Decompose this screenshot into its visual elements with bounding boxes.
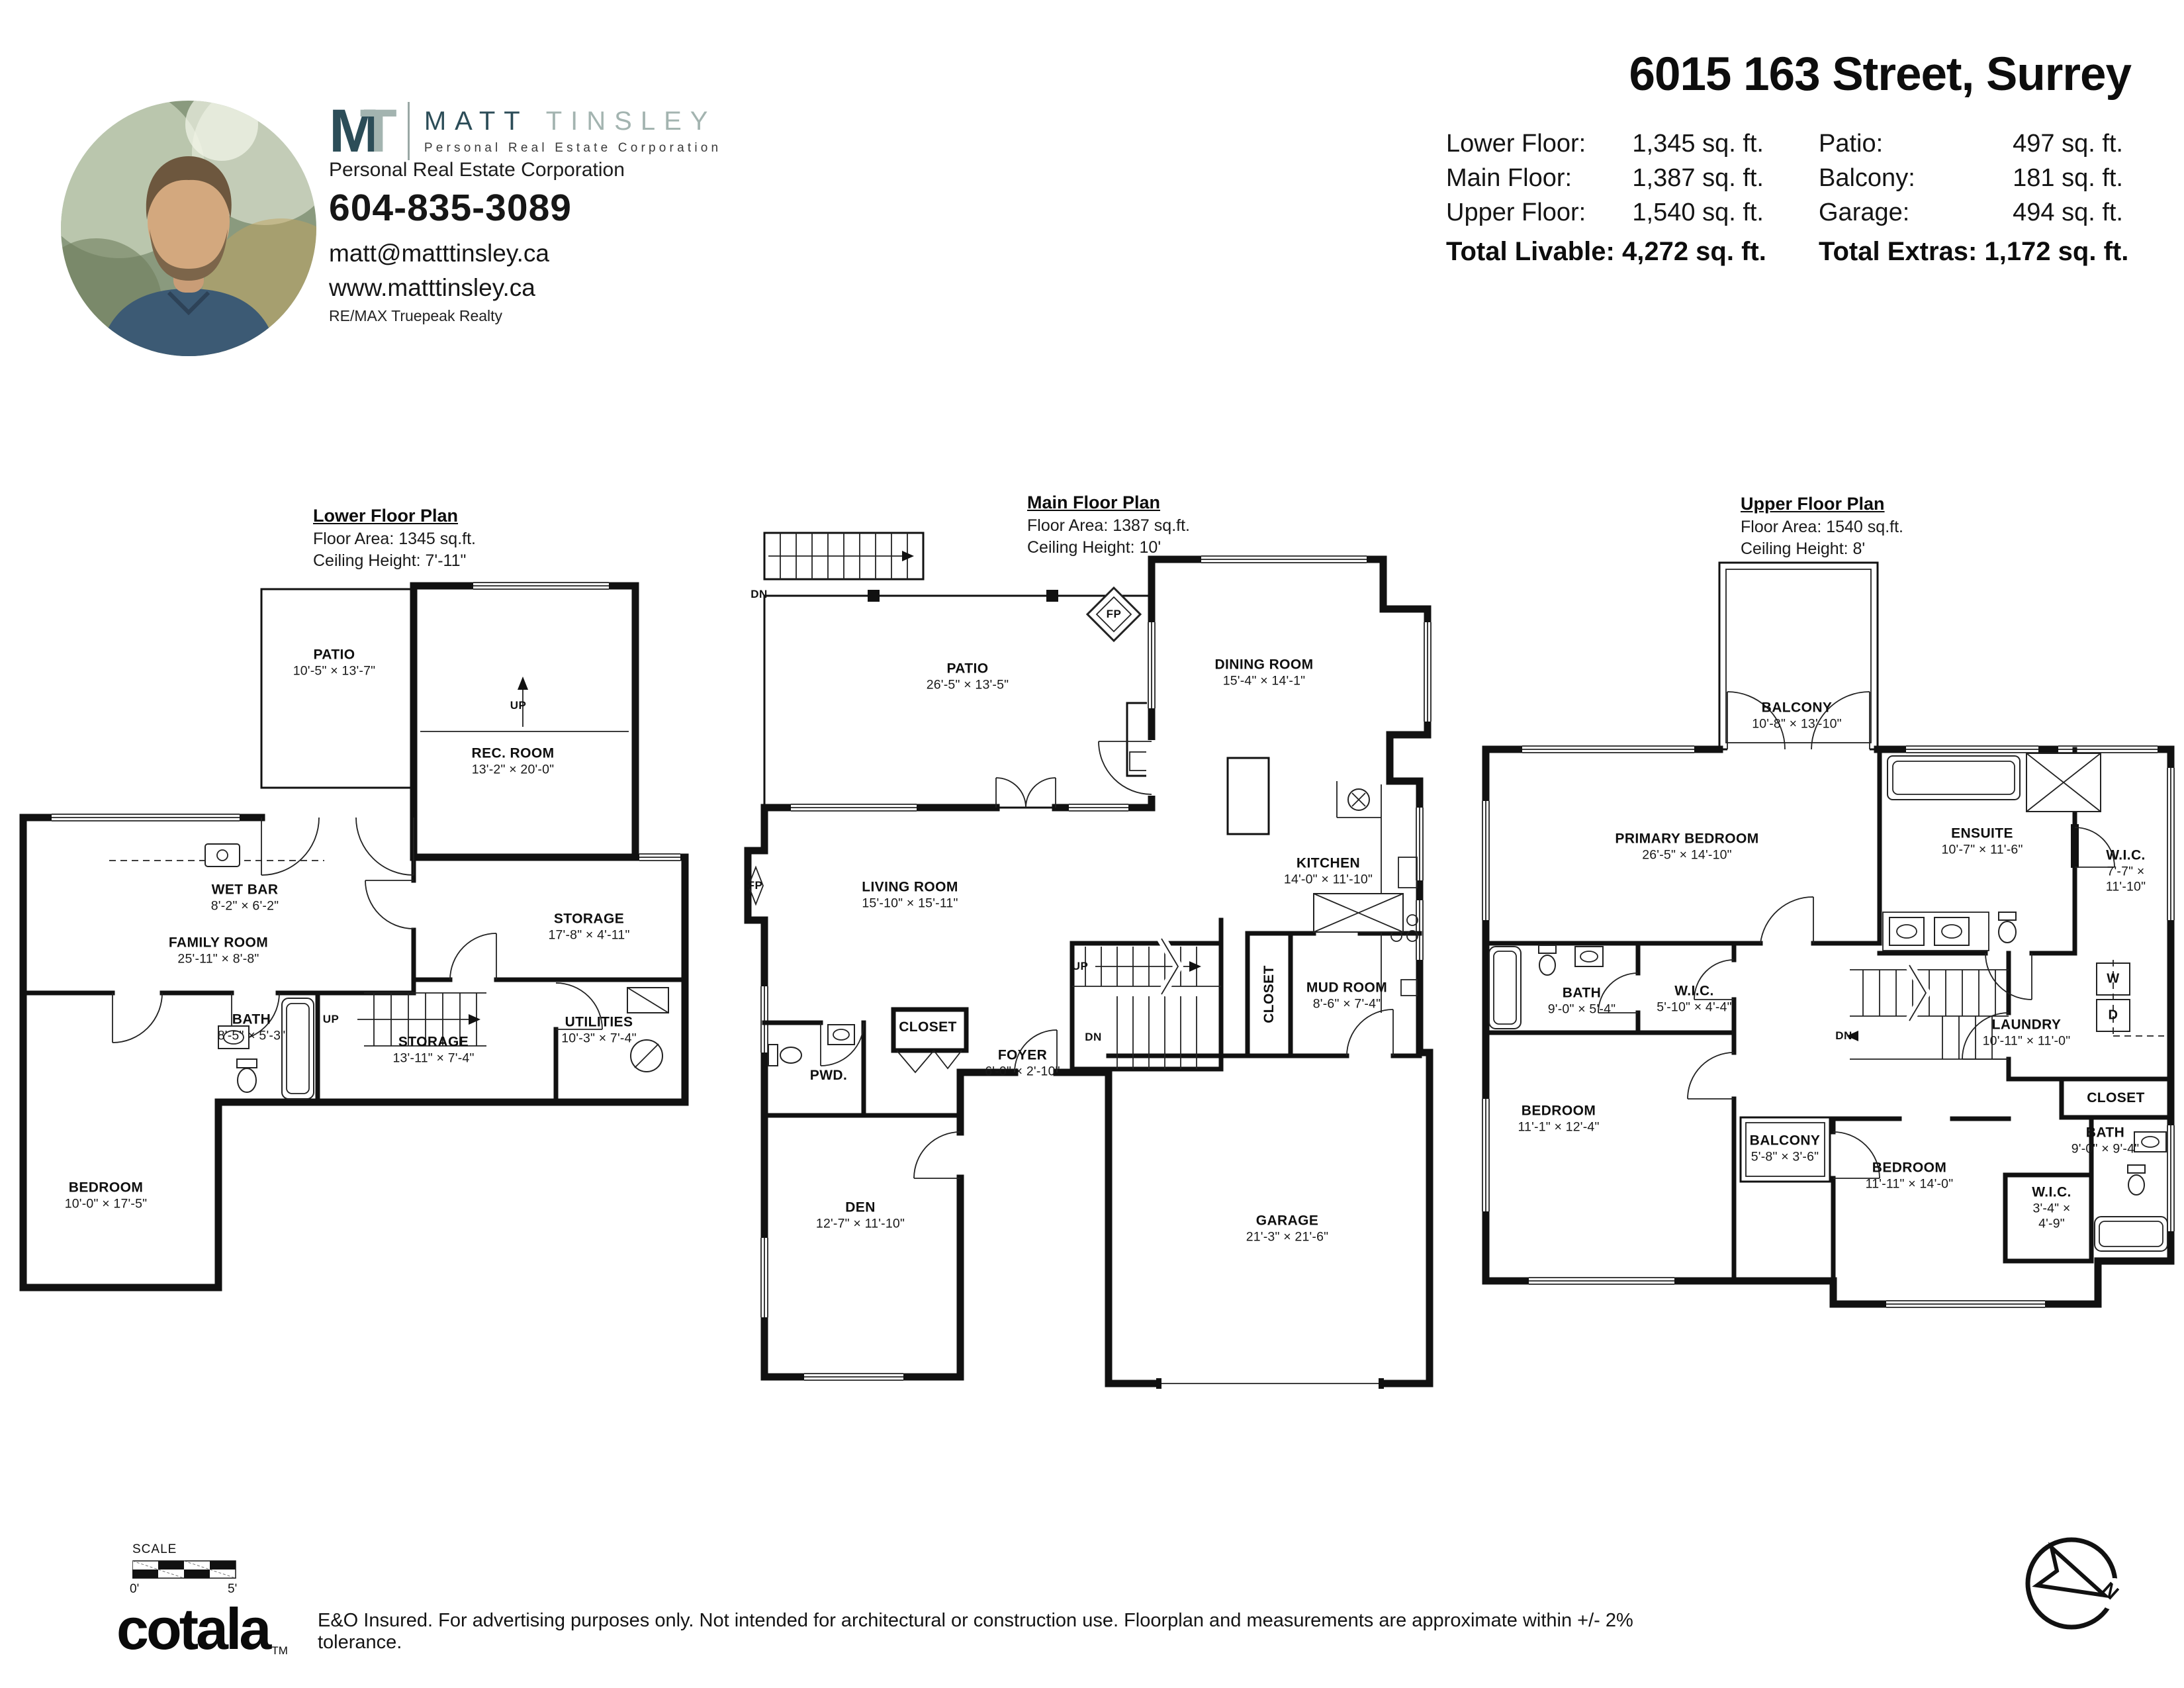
- agent-phone[interactable]: 604-835-3089: [329, 186, 572, 230]
- disclaimer-text: E&O Insured. For advertising purposes on…: [318, 1610, 1707, 1654]
- dryer-annotation: D: [2109, 1008, 2118, 1023]
- scale-label: SCALE: [132, 1542, 177, 1557]
- up-annotation: UP: [510, 699, 527, 712]
- room-label: UTILITIES10'-3" × 7'-4": [561, 1013, 637, 1046]
- room-label: PATIO10'-5" × 13'-7": [293, 646, 376, 679]
- scale-five: 5': [228, 1582, 237, 1597]
- lower-plan-header: Lower Floor Plan Floor Area: 1345 sq.ft.…: [313, 504, 476, 572]
- room-label: MUD ROOM8'-6" × 7'-4": [1306, 979, 1387, 1011]
- room-label: W.I.C.7'-7" × 11'-10": [2089, 847, 2162, 895]
- room-label: STORAGE17'-8" × 4'-11": [548, 910, 629, 943]
- logo-subtitle: Personal Real Estate Corporation: [424, 141, 721, 156]
- room-label: BEDROOM11'-1" × 12'-4": [1518, 1102, 1599, 1135]
- room-label: ENSUITE10'-7" × 11'-6": [1941, 825, 2023, 857]
- washer-annotation: W: [2107, 972, 2119, 987]
- scale-bar: [132, 1559, 238, 1580]
- cotala-logo: cotalaTM: [116, 1595, 288, 1663]
- room-label: LIVING ROOM15'-10" × 15'-11": [862, 878, 958, 911]
- agent-photo: [60, 99, 318, 357]
- toilet: [768, 1045, 778, 1066]
- room-label: KITCHEN14'-0" × 11'-10": [1284, 855, 1373, 887]
- room-label: W.I.C.5'-10" × 4'-4": [1657, 982, 1732, 1015]
- room-label: LAUNDRY10'-11" × 11'-0": [1983, 1016, 2071, 1049]
- stat-label-balcony: Balcony:: [1819, 164, 1915, 193]
- agent-email[interactable]: matt@matttinsley.ca: [329, 240, 549, 267]
- room-label: PWD.: [810, 1067, 847, 1084]
- room-label: BATH8'-5" × 5'-3": [218, 1011, 285, 1043]
- dn-annotation: DN: [1835, 1029, 1852, 1043]
- dn-annotation: DN: [1085, 1031, 1102, 1044]
- sink: [1575, 947, 1603, 966]
- total-livable: Total Livable: 4,272 sq. ft.: [1446, 237, 1766, 267]
- room-label: BEDROOM11'-11" × 14'-0": [1866, 1159, 1954, 1192]
- toilet: [1999, 912, 2016, 920]
- total-extras: Total Extras: 1,172 sq. ft.: [1819, 237, 2128, 267]
- toilet: [2128, 1165, 2145, 1173]
- room-label: PATIO26'-5" × 13'-5": [927, 660, 1009, 692]
- agent-designation: Personal Real Estate Corporation: [329, 159, 625, 181]
- scale-zero: 0': [130, 1582, 139, 1597]
- flyer-page: M T MATTTINSLEY Personal Real Estate Cor…: [0, 0, 2184, 1688]
- room-label: STORAGE13'-11" × 7'-4": [392, 1033, 474, 1066]
- room-label: CLOSET: [899, 1019, 957, 1036]
- room-label: BALCONY10'-8" × 13'-10": [1752, 699, 1842, 731]
- agent-logo: M T MATTTINSLEY Personal Real Estate Cor…: [329, 98, 752, 164]
- room-label: FOYER6'-0" × 2'-10": [985, 1047, 1060, 1079]
- stat-value-upper-floor: 1,540 sq. ft.: [1542, 199, 1764, 227]
- room-label: BEDROOM10'-0" × 17'-5": [65, 1179, 148, 1211]
- room-label: BALCONY5'-8" × 3'-6": [1750, 1132, 1821, 1164]
- sink: [828, 1025, 854, 1045]
- fireplace-annotation: FP: [1107, 608, 1122, 621]
- up-annotation: UP: [1072, 960, 1089, 973]
- room-label: GARAGE21'-3" × 21'-6": [1246, 1212, 1329, 1244]
- room-label: BATH9'-0" × 5'-4": [1548, 984, 1615, 1017]
- toilet: [1539, 945, 1556, 953]
- kitchen-island: [1228, 758, 1269, 834]
- stat-value-balcony: 181 sq. ft.: [1906, 164, 2123, 193]
- room-label: BATH9'-0" × 9'-4": [2071, 1124, 2139, 1156]
- main-floor-plan-drawing: [738, 523, 1453, 1403]
- property-title: 6015 163 Street, Surrey: [1377, 48, 2131, 101]
- room-label: W.I.C.3'-4" × 4'-9": [2021, 1184, 2083, 1232]
- stat-value-lower-floor: 1,345 sq. ft.: [1542, 130, 1764, 158]
- stat-label-patio: Patio:: [1819, 130, 1883, 158]
- logo-letter-t: T: [360, 101, 397, 162]
- up-annotation: UP: [323, 1013, 340, 1026]
- dn-annotation: DN: [751, 588, 768, 601]
- logo-first-name: MATT: [424, 107, 529, 136]
- fireplace-annotation: FP: [748, 879, 763, 892]
- room-label: PRIMARY BEDROOM26'-5" × 14'-10": [1615, 830, 1758, 863]
- stat-value-main-floor: 1,387 sq. ft.: [1542, 164, 1764, 193]
- stat-value-garage: 494 sq. ft.: [1906, 199, 2123, 227]
- room-label: DINING ROOM15'-4" × 14'-1": [1214, 656, 1313, 688]
- stat-label-garage: Garage:: [1819, 199, 1909, 227]
- room-label: WET BAR8'-2" × 6'-2": [211, 881, 279, 914]
- logo-last-name: TINSLEY: [546, 107, 717, 136]
- room-label: REC. ROOM13'-2" × 20'-0": [472, 745, 555, 777]
- room-label: DEN12'-7" × 11'-10": [816, 1199, 905, 1231]
- agent-brokerage: RE/MAX Truepeak Realty: [329, 307, 502, 325]
- room-label: CLOSET: [2087, 1090, 2145, 1107]
- agent-website[interactable]: www.matttinsley.ca: [329, 274, 535, 302]
- logo-divider: [408, 102, 410, 160]
- ensuite-tub: [1888, 756, 2020, 800]
- room-label: FAMILY ROOM25'-11" × 8'-8": [169, 934, 268, 966]
- toilet: [237, 1059, 257, 1068]
- compass-icon: [2017, 1534, 2136, 1654]
- room-label: CLOSET: [1261, 965, 1278, 1023]
- stat-value-patio: 497 sq. ft.: [1906, 130, 2123, 158]
